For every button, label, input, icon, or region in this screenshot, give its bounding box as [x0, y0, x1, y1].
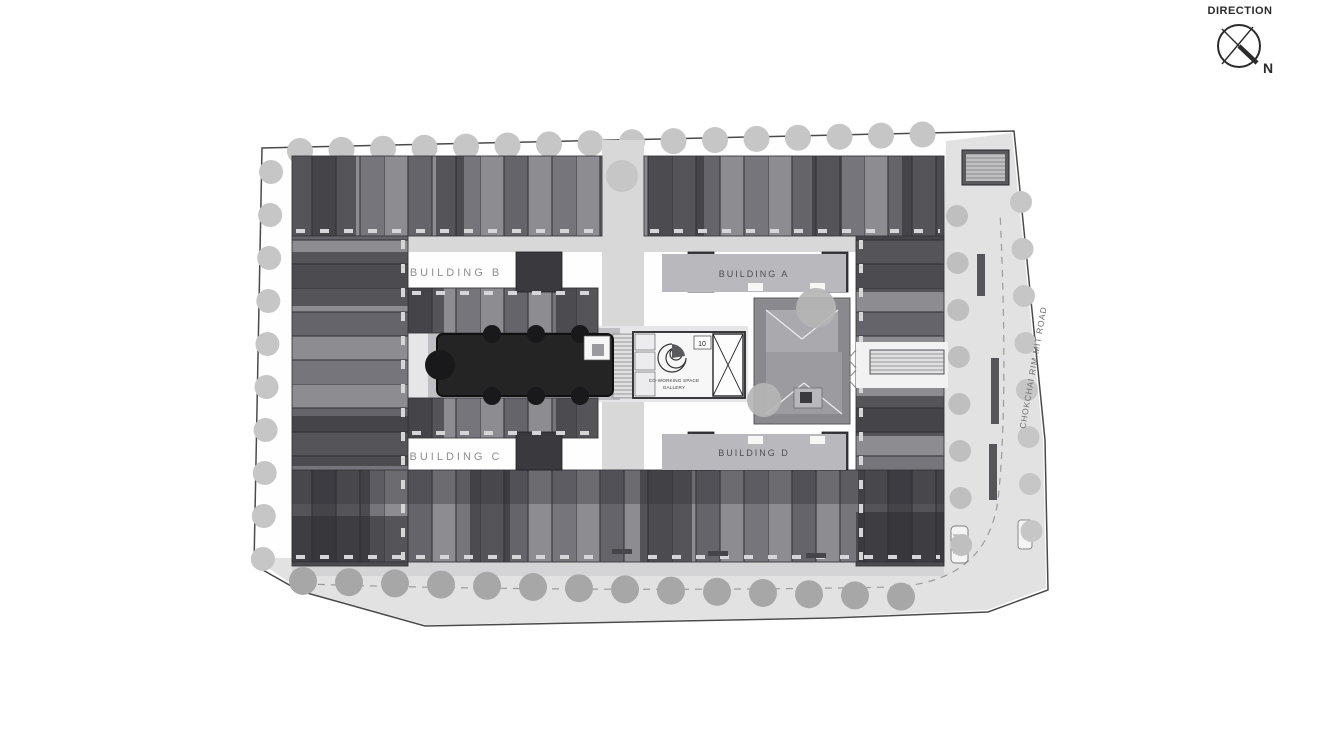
site-plan-page: 10 CO-WORKING SPACE GALLERY BUILDING A B… [0, 0, 1342, 754]
tree [255, 332, 279, 356]
unit-cluster [812, 156, 842, 236]
tree [1018, 426, 1040, 448]
tree [258, 203, 282, 227]
tree [256, 289, 280, 313]
tree [254, 418, 278, 442]
tree [795, 580, 823, 608]
east-parking-pad [848, 342, 948, 388]
tree [578, 130, 604, 156]
units-south-upper-shade [292, 470, 944, 504]
tree [785, 125, 811, 151]
tree [606, 160, 638, 192]
tree [749, 579, 777, 607]
building-c-label: BUILDING C [410, 451, 503, 463]
tree [657, 577, 685, 605]
tree [703, 578, 731, 606]
tree [910, 122, 936, 148]
pool-deck-notch-inner [592, 344, 604, 356]
unit-cluster [436, 156, 464, 236]
stair-core [516, 252, 562, 292]
tree [868, 123, 894, 149]
facility-label-line1: CO-WORKING SPACE [649, 378, 700, 383]
unit-cluster [856, 236, 944, 292]
tree [473, 572, 501, 600]
deck-hatch [613, 334, 633, 398]
corridor-mid-upper [602, 252, 644, 332]
tree [1010, 191, 1032, 213]
unit-cluster [292, 470, 370, 562]
tree [948, 393, 970, 415]
tree [251, 547, 275, 571]
stair-core [516, 432, 562, 470]
tree [841, 581, 869, 609]
compass-needle-icon [1239, 46, 1257, 63]
tree [702, 127, 728, 153]
building-d-label: BUILDING D [718, 448, 790, 458]
tree [495, 133, 521, 159]
tree [427, 571, 455, 599]
tree [827, 124, 853, 150]
bench [806, 553, 826, 558]
site-plan-drawing: 10 CO-WORKING SPACE GALLERY BUILDING A B… [0, 0, 1342, 754]
tree [947, 252, 969, 274]
building-b-label: BUILDING B [410, 267, 502, 279]
tree [946, 205, 968, 227]
tree [1013, 285, 1035, 307]
tree [947, 299, 969, 321]
tree [335, 568, 363, 596]
compass-north-label: N [1263, 60, 1273, 76]
tree [796, 288, 836, 328]
unit-number: 10 [698, 341, 706, 348]
unit-cluster [292, 416, 408, 466]
compass-title: DIRECTION [1208, 5, 1273, 17]
tree [744, 126, 770, 152]
unit-cluster [470, 470, 510, 562]
tree [1012, 238, 1034, 260]
tree [381, 569, 409, 597]
unit-cluster [292, 252, 408, 306]
tree [289, 567, 317, 595]
tree [536, 131, 562, 157]
compass: DIRECTION N [1208, 5, 1274, 76]
tree [252, 504, 276, 528]
tree [1019, 473, 1041, 495]
building-a-structure [747, 288, 850, 424]
tree [519, 573, 547, 601]
unit-cluster [902, 156, 944, 236]
tree [747, 383, 781, 417]
facility-label-line2: GALLERY [663, 385, 686, 390]
tree [950, 534, 972, 556]
unit-cluster [292, 156, 356, 236]
unit-cluster [640, 470, 692, 562]
building-a-label: BUILDING A [719, 269, 790, 279]
unit-cluster [648, 156, 704, 236]
tree [1021, 520, 1043, 542]
tree [257, 246, 281, 270]
tree [950, 487, 972, 509]
unit-cluster [856, 396, 944, 436]
tree [948, 346, 970, 368]
tree [259, 160, 283, 184]
tree [255, 375, 279, 399]
entrance-kiosk [962, 150, 1009, 185]
tree [611, 575, 639, 603]
bench [708, 551, 728, 556]
tree [661, 128, 687, 154]
bench [612, 549, 632, 554]
facility-block: 10 CO-WORKING SPACE GALLERY [633, 332, 745, 398]
tree [253, 461, 277, 485]
tree [887, 583, 915, 611]
tree [565, 574, 593, 602]
unit-cluster [858, 470, 944, 562]
tree [949, 440, 971, 462]
